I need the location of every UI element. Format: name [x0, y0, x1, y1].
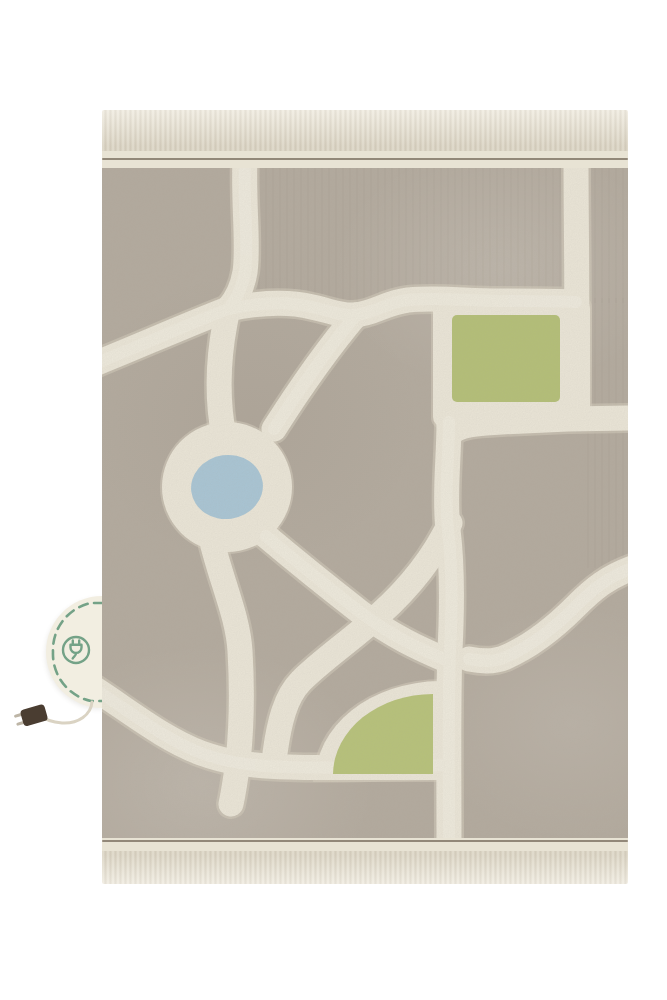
plug-icon — [59, 633, 93, 667]
rug-fringe-top — [102, 110, 628, 151]
rug-edge-band-bottom — [102, 838, 628, 851]
plug — [13, 704, 48, 729]
power-cord — [8, 692, 108, 738]
rug-pile — [102, 168, 628, 838]
pile-texture — [102, 168, 628, 838]
rug-edge-line-bottom — [102, 840, 628, 842]
rug-map-graphic — [102, 168, 628, 838]
play-rug — [102, 110, 628, 884]
product-photo — [0, 0, 667, 1000]
rug-fringe-bottom — [102, 851, 628, 884]
rug-edge-band-top — [102, 151, 628, 168]
rug-edge-line-top — [102, 158, 628, 160]
